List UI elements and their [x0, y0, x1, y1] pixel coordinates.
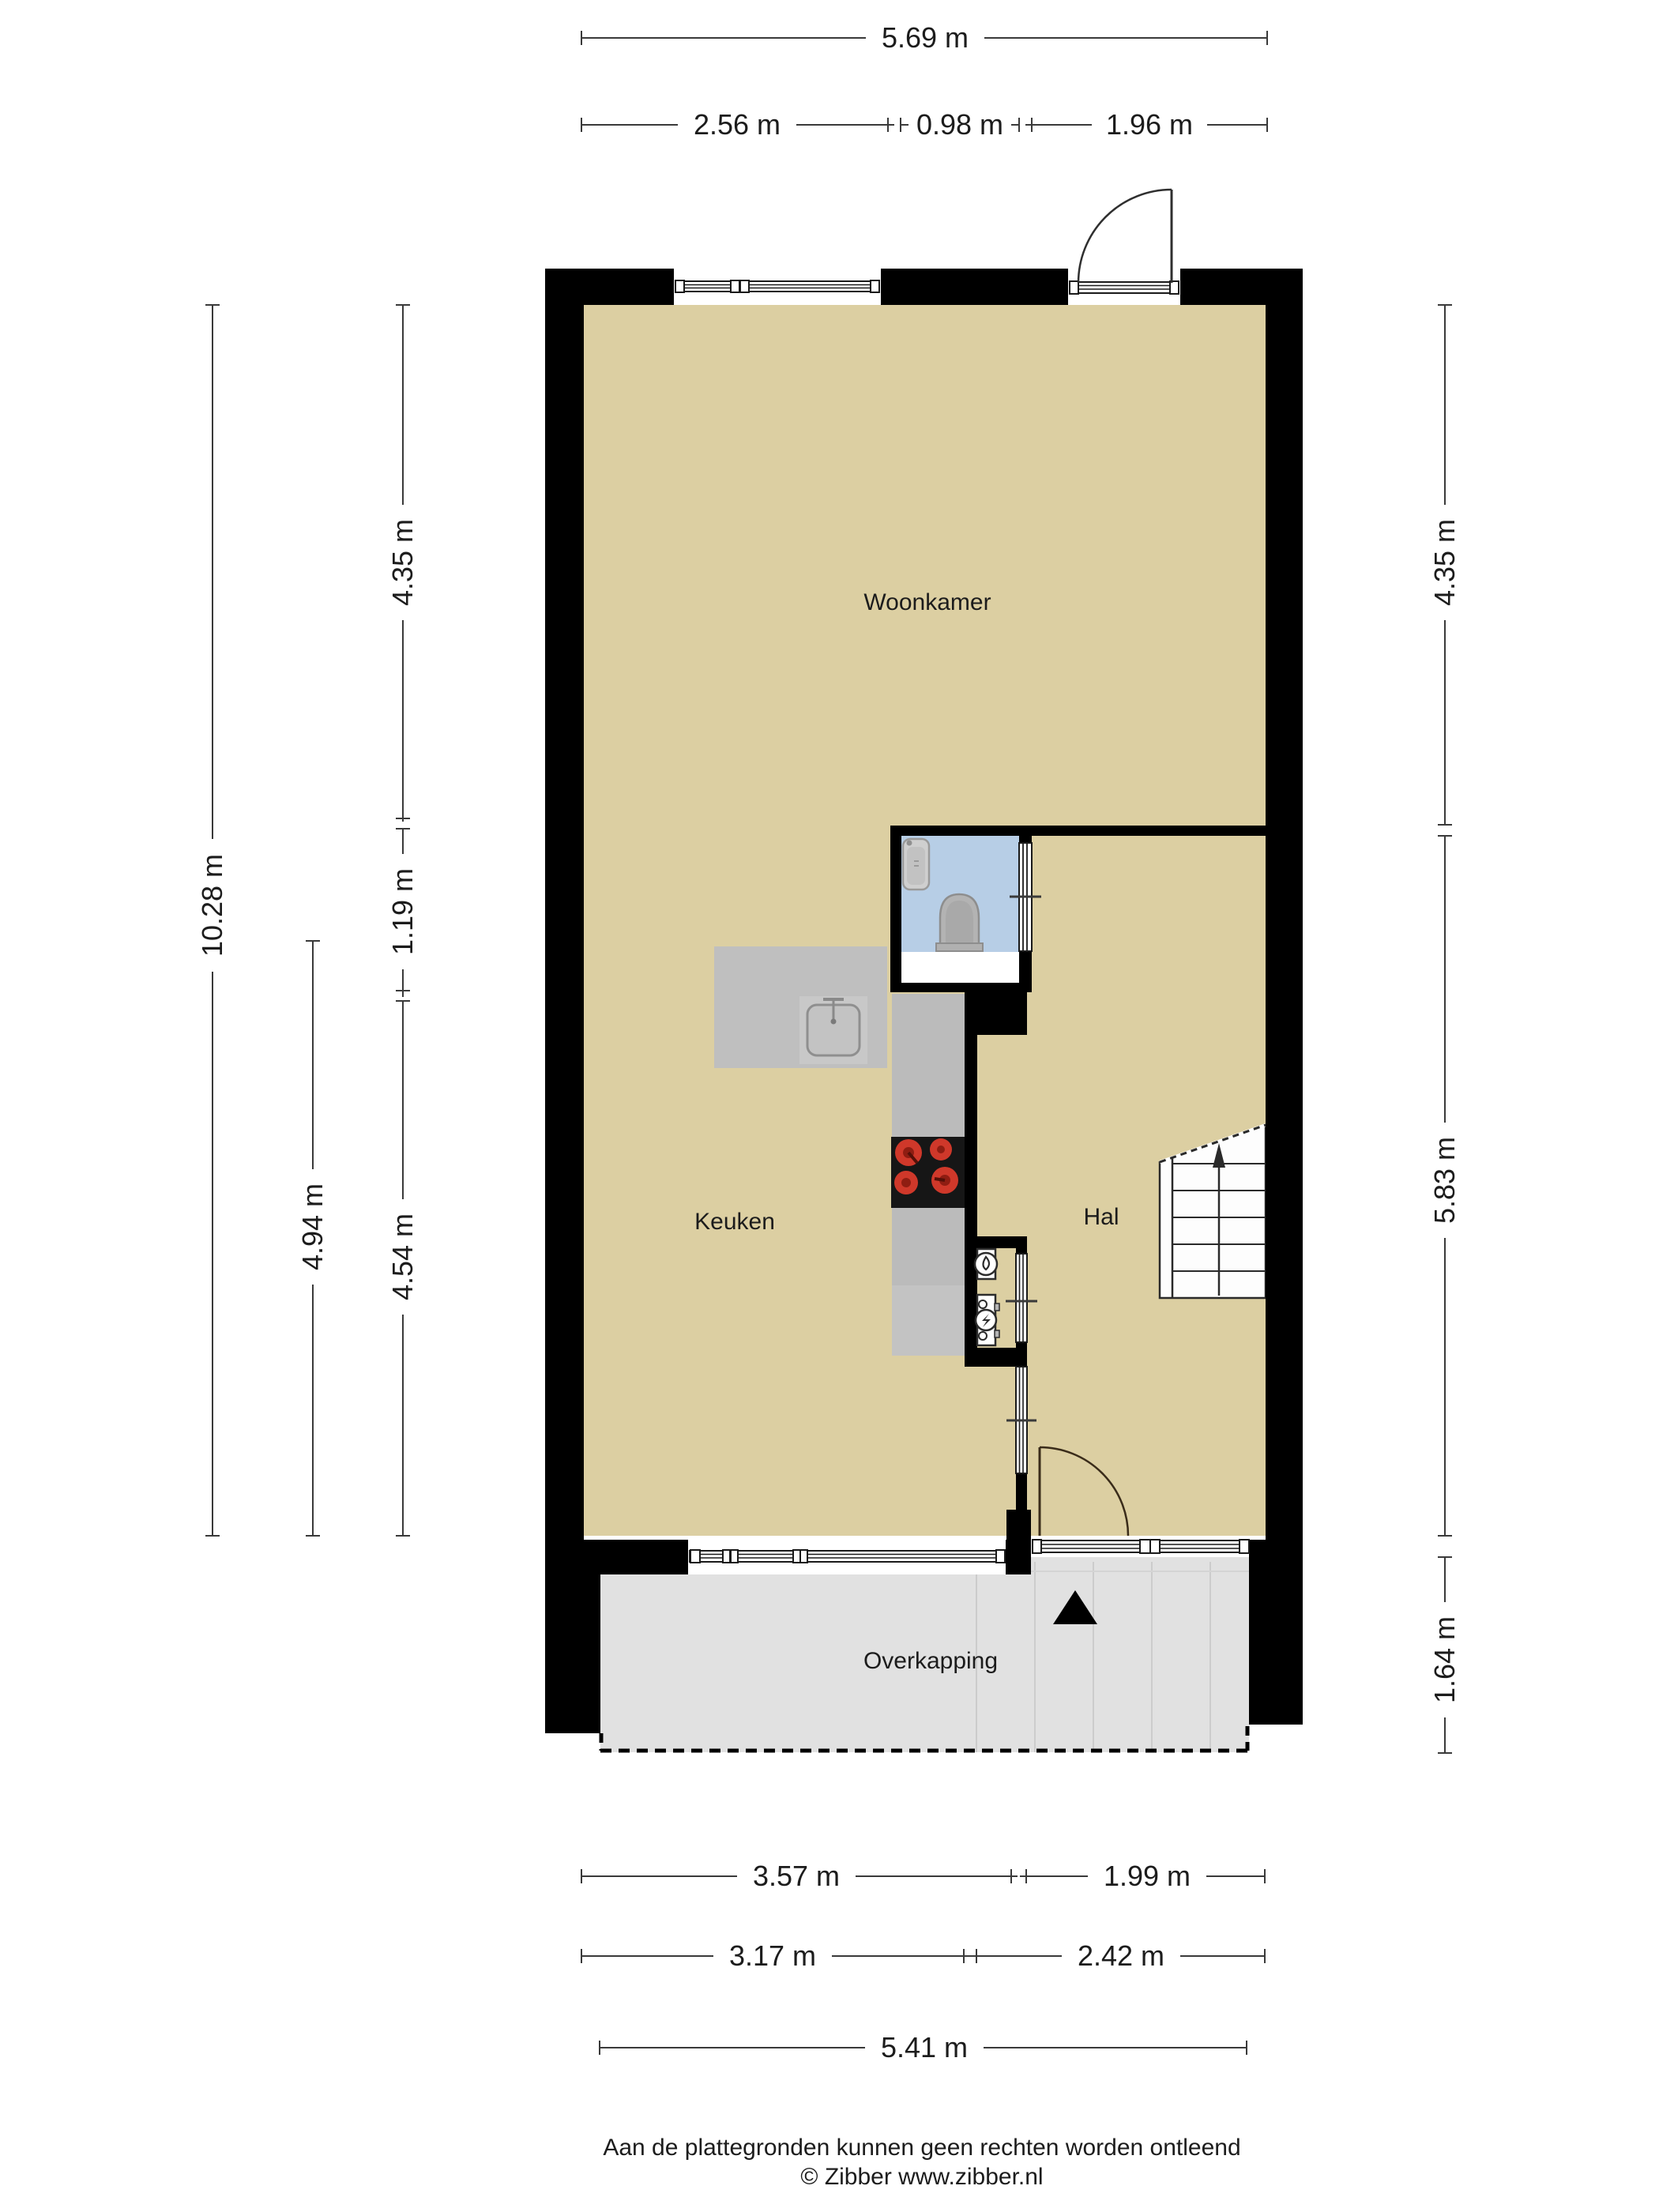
svg-text:0.98 m: 0.98 m: [916, 108, 1003, 141]
svg-text:Woonkamer: Woonkamer: [863, 589, 991, 615]
svg-text:3.57 m: 3.57 m: [753, 1860, 840, 1892]
svg-text:1.96 m: 1.96 m: [1106, 108, 1193, 141]
svg-text:2.42 m: 2.42 m: [1078, 1939, 1164, 1972]
svg-text:2.56 m: 2.56 m: [694, 108, 781, 141]
svg-text:4.35 m: 4.35 m: [386, 519, 419, 606]
svg-text:10.28 m: 10.28 m: [196, 854, 228, 957]
svg-text:4.54 m: 4.54 m: [386, 1213, 419, 1300]
svg-text:5.83 m: 5.83 m: [1428, 1137, 1461, 1224]
svg-text:4.94 m: 4.94 m: [296, 1183, 329, 1270]
svg-text:Overkapping: Overkapping: [863, 1648, 998, 1674]
svg-text:Keuken: Keuken: [694, 1209, 775, 1235]
svg-text:4.35 m: 4.35 m: [1428, 519, 1461, 606]
svg-text:5.69 m: 5.69 m: [882, 21, 969, 54]
svg-text:3.17 m: 3.17 m: [729, 1939, 816, 1972]
svg-text:1.19 m: 1.19 m: [386, 868, 419, 955]
svg-text:1.99 m: 1.99 m: [1104, 1860, 1191, 1892]
svg-text:Hal: Hal: [1083, 1204, 1119, 1230]
svg-text:5.41 m: 5.41 m: [881, 2031, 968, 2063]
svg-text:Aan de plattegronden kunnen ge: Aan de plattegronden kunnen geen rechten…: [603, 2135, 1240, 2161]
svg-text:© Zibber www.zibber.nl: © Zibber www.zibber.nl: [800, 2164, 1043, 2190]
svg-text:1.64 m: 1.64 m: [1428, 1616, 1461, 1703]
